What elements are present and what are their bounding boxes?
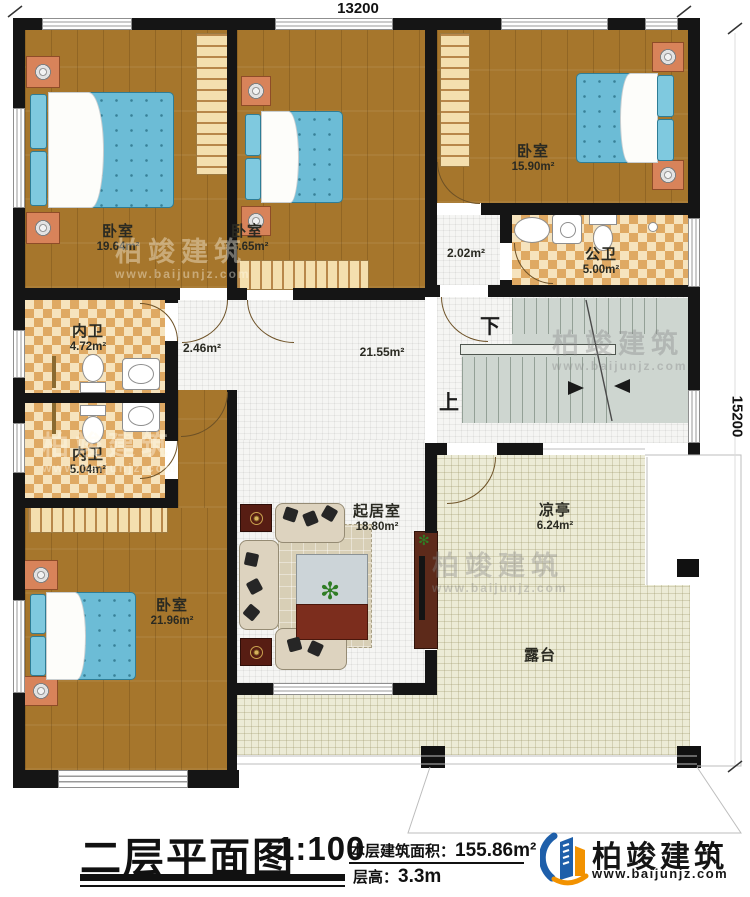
nightstand (652, 160, 684, 190)
wall (13, 288, 180, 300)
room-label-terrace: 露台 (524, 648, 556, 665)
end-table (240, 504, 272, 532)
sofa-pillow (244, 552, 259, 567)
brand-url: www.baijunjz.com (592, 866, 728, 881)
title-underline-thick (80, 874, 345, 881)
wall (237, 288, 247, 300)
wall (500, 215, 512, 243)
room-area: 18.65m² (226, 241, 269, 254)
hall-area-main: 21.55m² (360, 345, 405, 359)
bed-headboard-cushion (245, 114, 261, 156)
bed-headboard-cushion (245, 158, 261, 200)
wall (425, 443, 437, 533)
window (501, 18, 608, 30)
window (688, 390, 700, 443)
end-table (240, 638, 272, 666)
room-name: 内卫 (70, 324, 106, 341)
sink (128, 406, 154, 426)
nightstand (24, 676, 58, 706)
wall (425, 203, 437, 215)
tv (419, 556, 425, 620)
floor-height-label: 层高： (353, 869, 398, 886)
wall (425, 285, 440, 297)
wall (13, 393, 178, 403)
room-area: 6.24m² (537, 520, 573, 533)
room-label-public-bath: 公卫 5.00m² (583, 247, 619, 277)
hall-area-mid: 2.46m² (183, 341, 221, 355)
room-name: 卧室 (151, 598, 194, 615)
wall (425, 18, 437, 297)
nightstand (26, 56, 60, 88)
nightstand (26, 212, 60, 244)
window (42, 18, 132, 30)
room-area: 5.00m² (583, 264, 619, 277)
window (645, 18, 678, 30)
window (58, 770, 188, 788)
towel-rail (52, 356, 56, 388)
window (275, 18, 393, 30)
floor-plan-page: { "plan": { "dim_top": "13200", "dim_rig… (0, 0, 750, 897)
toilet-tank (589, 214, 617, 225)
room-name: 内卫 (70, 447, 106, 464)
window (688, 218, 700, 287)
column (421, 746, 445, 768)
room-name: 卧室 (512, 144, 555, 161)
room-area: 5.04m² (70, 464, 106, 477)
wardrobe (196, 33, 229, 175)
room-label-bedroom-top-left: 卧室 19.64m² (97, 224, 140, 254)
bed-headboard-cushion (657, 119, 674, 161)
room-area: 18.80m² (353, 521, 401, 534)
room-label-bedroom-top-right: 卧室 15.90m² (512, 144, 555, 174)
toilet-tank (80, 382, 106, 393)
wall (227, 683, 273, 695)
wall (488, 285, 700, 297)
washing-machine (552, 214, 582, 244)
title-divider-line (349, 862, 524, 864)
wall (393, 683, 437, 695)
room-label-bedroom-top-middle: 卧室 18.65m² (226, 224, 269, 254)
wardrobe (28, 505, 168, 533)
room-name: 凉亭 (537, 503, 573, 520)
wall (165, 288, 178, 303)
window (13, 330, 25, 378)
coffee-table-wood (296, 604, 368, 640)
window (273, 683, 393, 695)
door-arc (140, 441, 178, 479)
room-label-ensuite-b: 内卫 5.04m² (70, 447, 106, 477)
staircase-lower-treads (462, 357, 610, 423)
bed-headboard-cushion (30, 594, 46, 634)
room-name: 卧室 (226, 224, 269, 241)
wardrobe (237, 260, 369, 290)
column (677, 746, 701, 768)
wall (497, 443, 543, 455)
room-label-pavilion: 凉亭 6.24m² (537, 503, 573, 533)
window (13, 600, 25, 693)
towel-rail (52, 402, 56, 434)
wall (481, 203, 700, 215)
sink (514, 217, 550, 243)
nightstand (652, 42, 684, 72)
wall (293, 288, 425, 300)
wall (165, 479, 178, 508)
bed-headboard-cushion (30, 636, 46, 676)
room-name: 公卫 (583, 247, 619, 264)
stair-down-label: 下 (480, 310, 500, 339)
wall (13, 498, 178, 508)
room-area: 19.64m² (97, 241, 140, 254)
wall (165, 341, 178, 441)
column (677, 559, 699, 577)
toilet-bowl (82, 354, 104, 382)
door-arc (140, 303, 178, 341)
wall (430, 443, 447, 455)
bed-headboard-cushion (30, 151, 47, 206)
wall (227, 18, 237, 300)
floor-height-row: 层高：3.3m (353, 866, 441, 888)
room-area: 21.96m² (151, 615, 194, 628)
floor-height-value: 3.3m (398, 866, 441, 887)
stair-up-label: 上 (439, 386, 459, 415)
room-label-bedroom-bottom-left: 卧室 21.96m² (151, 598, 194, 628)
room-name: 露台 (524, 648, 556, 665)
room-area: 4.72m² (70, 341, 106, 354)
room-label-living: 起居室 18.80m² (353, 504, 401, 534)
room-label-ensuite-a: 内卫 4.72m² (70, 324, 106, 354)
bed-headboard-cushion (30, 94, 47, 149)
hall-area-small: 2.02m² (447, 246, 485, 260)
bed-headboard-cushion (657, 75, 674, 117)
floor-terrace-right (437, 585, 690, 755)
nightstand (24, 560, 58, 590)
towel-hook (648, 222, 658, 232)
toilet-tank (80, 405, 106, 416)
room-area: 15.90m² (512, 161, 555, 174)
nightstand (241, 76, 271, 106)
brand-logo-icon (540, 830, 592, 886)
bed-sheet (46, 592, 86, 680)
bed-sheet (261, 111, 299, 203)
room-name: 卧室 (97, 224, 140, 241)
window (13, 423, 25, 473)
wardrobe (440, 33, 470, 167)
wall (227, 390, 237, 770)
sink (128, 364, 154, 384)
dimension-right: 15200 (728, 396, 745, 438)
plant: ✻ (320, 580, 340, 604)
dimension-top: 13200 (337, 0, 379, 17)
tv-cabinet (414, 531, 438, 649)
plant: ✻ (418, 533, 430, 547)
window (13, 108, 25, 208)
title-underline-thin (80, 885, 345, 887)
bed-sheet (48, 92, 104, 208)
staircase-handrail (460, 344, 616, 355)
bed-sheet (620, 73, 658, 163)
floor-area-label: 本层建筑面积： (350, 843, 455, 860)
staircase-upper-treads (512, 298, 662, 334)
floor-area-value: 155.86m² (455, 840, 536, 861)
floor-area-row: 本层建筑面积：155.86m² (350, 840, 536, 862)
floor-terrace-bottom (237, 695, 437, 755)
toilet-bowl (82, 416, 104, 444)
room-name: 起居室 (353, 504, 401, 521)
